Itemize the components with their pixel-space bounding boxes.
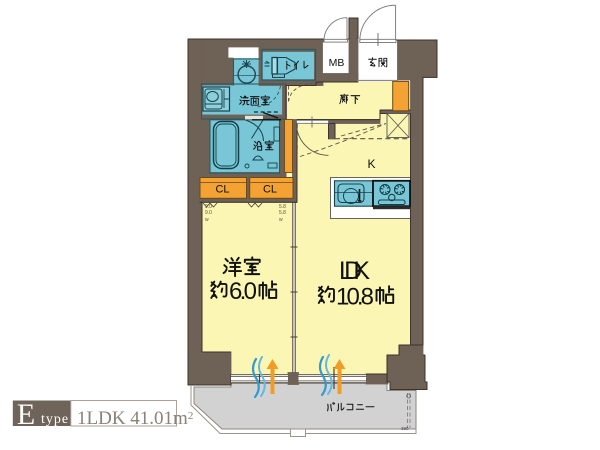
svg-text:380: 380 [401,426,409,431]
svg-text:w: w [205,217,209,223]
svg-text:CL: CL [215,184,229,196]
svg-text:LDK: LDK [339,257,370,285]
svg-text:10.8: 10.8 [336,284,374,311]
svg-text:K: K [367,157,375,171]
svg-text:CL: CL [263,184,277,196]
svg-text:6.0: 6.0 [229,278,257,305]
svg-text:9.0: 9.0 [205,210,212,216]
svg-text:MB: MB [329,57,345,69]
svg-text:5.8: 5.8 [279,210,286,216]
svg-text:E: E [17,398,35,431]
svg-text:type: type [41,412,69,427]
svg-text:1LDK 41.01m2: 1LDK 41.01m2 [77,408,193,429]
svg-text:w: w [279,217,283,223]
